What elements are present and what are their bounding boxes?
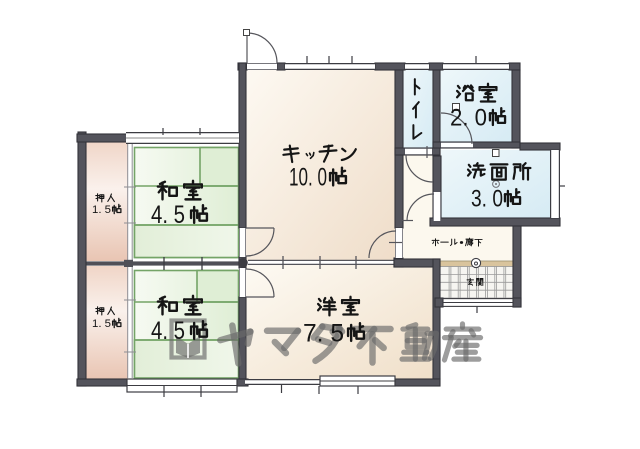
- svg-text:2. 0: 2. 0: [450, 105, 487, 132]
- svg-text:4. 5: 4. 5: [151, 317, 185, 345]
- svg-text:1. 5: 1. 5: [92, 318, 111, 330]
- svg-text:4. 5: 4. 5: [151, 201, 185, 229]
- svg-text:10. 0: 10. 0: [289, 164, 327, 192]
- svg-text:3. 0: 3. 0: [471, 186, 503, 213]
- svg-text:1. 5: 1. 5: [92, 204, 111, 216]
- svg-text:7. 5: 7. 5: [303, 320, 344, 348]
